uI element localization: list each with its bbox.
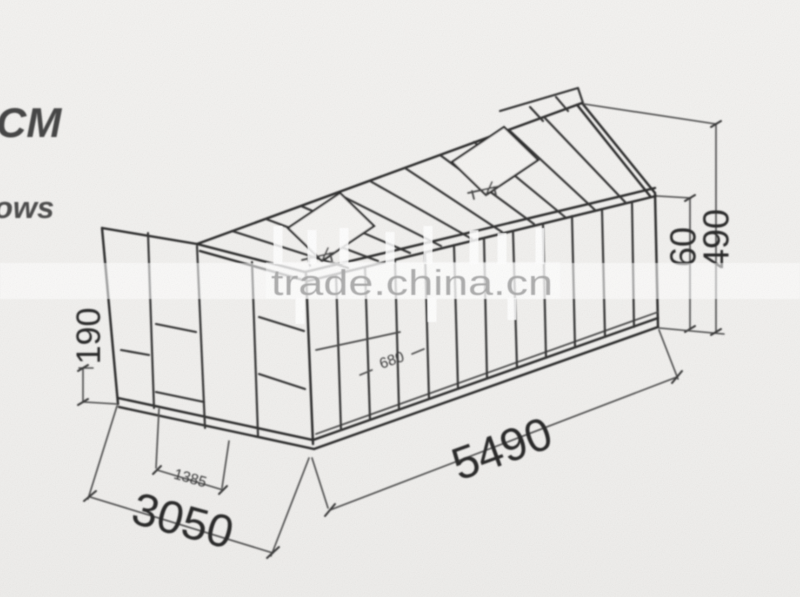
greenhouse-dimension-drawing: 5490 3050 1385 190 60 490 680 CM ows tra… [0, 0, 800, 597]
photo-grain-overlay [0, 0, 800, 597]
photo-of-technical-drawing: 5490 3050 1385 190 60 490 680 CM ows tra… [0, 0, 800, 597]
